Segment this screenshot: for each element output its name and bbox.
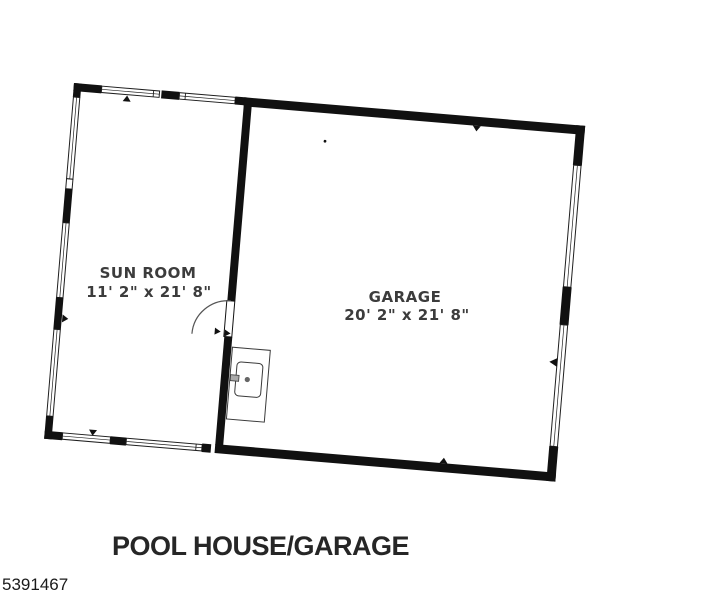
room-labels: SUN ROOM 11' 2" x 21' 8" GARAGE 20' 2" x… <box>86 264 470 324</box>
utility-fixture-icon <box>226 347 270 422</box>
window-icon <box>62 433 110 443</box>
wall-segment <box>215 444 557 482</box>
window-icon <box>101 86 159 97</box>
window-icon <box>47 329 61 416</box>
sunroom-top-wall <box>73 83 248 112</box>
wall-segment <box>559 287 571 326</box>
garage-right-wall <box>539 125 585 482</box>
sunroom-name-label: SUN ROOM <box>100 264 197 282</box>
wall-marker-icon <box>549 357 558 367</box>
sunroom-bottom-wall <box>44 426 212 453</box>
wall-marker-icon <box>62 314 69 322</box>
listing-id: 5391467 <box>2 575 68 595</box>
wall-segment <box>244 97 586 135</box>
window-icon <box>67 97 80 179</box>
floorplan-page: SUN ROOM 11' 2" x 21' 8" GARAGE 20' 2" x… <box>0 0 728 600</box>
window-icon <box>550 325 568 447</box>
window-icon <box>563 165 581 287</box>
sunroom-dimensions-label: 11' 2" x 21' 8" <box>86 283 212 301</box>
garage-dimensions-label: 20' 2" x 21' 8" <box>344 306 470 324</box>
door-swing-icon <box>192 298 235 337</box>
wall-segment <box>73 83 82 98</box>
wall-segment <box>53 297 63 330</box>
floorplan-svg: SUN ROOM 11' 2" x 21' 8" GARAGE 20' 2" x… <box>0 0 728 600</box>
wall-segment <box>110 436 127 445</box>
garage-top-wall <box>243 97 585 140</box>
wall-segment <box>202 443 212 452</box>
window-icon <box>66 179 73 190</box>
garage-bottom-wall <box>215 439 557 482</box>
wall-marker-icon <box>123 95 131 102</box>
window-icon <box>179 93 235 104</box>
plan-speck <box>323 140 326 143</box>
garage-name-label: GARAGE <box>369 288 442 306</box>
plan-title: POOL HOUSE/GARAGE <box>112 531 409 562</box>
wall-segment <box>227 104 251 301</box>
wall-marker-icon <box>472 126 480 132</box>
sunroom-left-wall <box>44 83 88 440</box>
wall-segment <box>62 189 72 224</box>
window-icon <box>57 223 70 298</box>
window-icon <box>126 438 202 451</box>
wall-marker-icon <box>439 457 447 463</box>
wall-segment <box>161 90 180 99</box>
